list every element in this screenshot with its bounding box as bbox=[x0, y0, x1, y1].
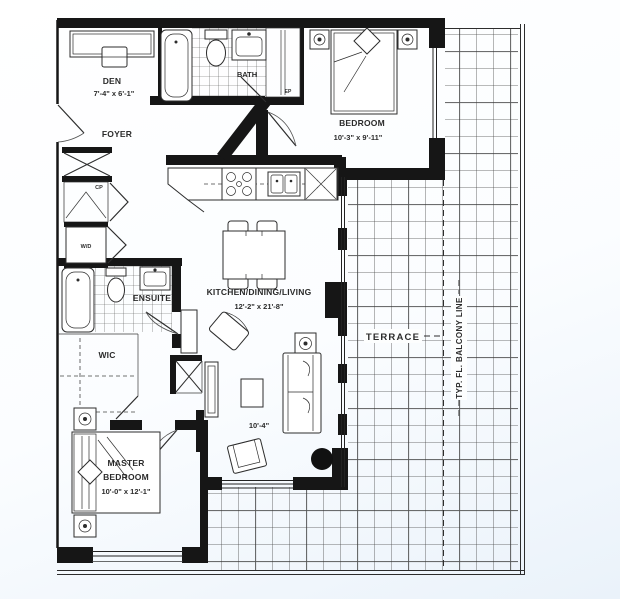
den-label: DEN bbox=[103, 76, 122, 86]
entry-door bbox=[58, 105, 84, 133]
wall-kitchen-north bbox=[166, 155, 342, 165]
bedroom-furniture bbox=[310, 28, 417, 114]
wall-top bbox=[57, 18, 445, 28]
master-label-2: BEDROOM bbox=[103, 472, 149, 482]
balcony-line-label: TYP. FL. BALCONY LINE bbox=[455, 297, 464, 399]
terrace-label: TERRACE bbox=[366, 332, 420, 343]
cp-bifold-door bbox=[110, 183, 128, 221]
dining bbox=[223, 221, 285, 289]
terrace-grid-bold bbox=[207, 487, 518, 570]
kitchen-sink-drain bbox=[276, 180, 279, 183]
ensuite-sink-faucet bbox=[153, 268, 156, 271]
bath-tub-drain bbox=[175, 41, 178, 44]
wall-living-east-seg bbox=[338, 318, 347, 336]
wic-door bbox=[116, 396, 138, 419]
living-furniture bbox=[205, 308, 333, 473]
den-dims: 7'-4" x 6'-1" bbox=[94, 89, 135, 98]
bedroom-dims: 10'-3" x 9'-11" bbox=[334, 133, 383, 142]
coffee-table bbox=[241, 379, 263, 407]
ensuite-toilet-tank bbox=[106, 268, 126, 276]
kitchen-sink bbox=[268, 172, 300, 196]
stove bbox=[222, 168, 256, 200]
entry-door-swing bbox=[58, 133, 84, 142]
wall-ep-south bbox=[262, 97, 304, 105]
lamp-icon-dot bbox=[83, 417, 87, 421]
lamp-icon-dot bbox=[406, 38, 410, 42]
ensuite-tub-drain bbox=[77, 279, 80, 282]
cp-closet-doors bbox=[66, 192, 106, 218]
wall-master-east bbox=[200, 430, 208, 563]
wall-living-east-corner bbox=[332, 448, 348, 490]
armchair bbox=[227, 438, 267, 473]
bath-toilet bbox=[207, 40, 226, 66]
lamp-icon-dot bbox=[83, 524, 87, 528]
den-furniture bbox=[70, 31, 154, 67]
structural-column bbox=[311, 448, 333, 470]
bath-label: BATH bbox=[237, 70, 257, 79]
living-dim: 10'-4" bbox=[249, 421, 270, 430]
kitchen-dims: 12'-2" x 21'-8" bbox=[234, 302, 283, 311]
wall-living-east-seg bbox=[338, 228, 347, 250]
ensuite-label: ENSUITE bbox=[133, 293, 171, 303]
wd-label: W/D bbox=[81, 244, 92, 250]
kitchen-label: KITCHEN/DINING/LIVING bbox=[207, 287, 312, 297]
lamp-icon-dot bbox=[304, 342, 308, 346]
bedroom-door bbox=[268, 112, 296, 146]
wall-bedroom-door-stub bbox=[256, 110, 268, 158]
x-closet-top-bar bbox=[62, 147, 112, 153]
wall-master-north-right bbox=[175, 420, 208, 430]
bath-toilet-tank bbox=[205, 30, 227, 39]
wic-area bbox=[58, 334, 138, 414]
wall-living-east-seg bbox=[338, 177, 347, 196]
living-x-closet bbox=[176, 361, 202, 393]
tv-console bbox=[205, 362, 218, 417]
wall-master-north-left bbox=[110, 420, 142, 430]
floor-plan: TERRACE TYP. FL. BALCONY LINE bbox=[0, 0, 620, 599]
wall-master-south-right bbox=[182, 547, 208, 563]
kitchen-counter-return bbox=[188, 200, 204, 212]
wall-bedroom-east-upper bbox=[429, 18, 445, 48]
wd-bottom-bar bbox=[64, 263, 108, 268]
wall-living-east-block bbox=[325, 282, 347, 318]
lamp-icon-dot bbox=[318, 38, 322, 42]
hall-wall-panel bbox=[181, 310, 197, 353]
wd-top-bar bbox=[64, 222, 108, 227]
wall-closet-left bbox=[170, 355, 176, 394]
kitchen-sink-drain bbox=[290, 180, 293, 183]
bath-sink-faucet bbox=[247, 32, 251, 36]
floor-plan-page: TERRACE TYP. FL. BALCONY LINE bbox=[0, 0, 620, 599]
sofa bbox=[283, 353, 321, 433]
bedroom-label: BEDROOM bbox=[339, 118, 385, 128]
terrace-grid-bold bbox=[445, 28, 518, 180]
armchair bbox=[208, 308, 252, 351]
wic-label: WIC bbox=[98, 350, 115, 360]
ep-closet bbox=[266, 28, 300, 97]
ep-closet-box bbox=[266, 28, 300, 97]
cp-label: CP bbox=[95, 185, 103, 191]
dining-table bbox=[223, 231, 285, 279]
wall-ensuite-east-upper bbox=[172, 266, 181, 312]
master-label-1: MASTER bbox=[107, 458, 144, 468]
ep-label: EP bbox=[285, 89, 292, 95]
wall-master-south-left bbox=[57, 547, 93, 563]
wall-bedroom-south bbox=[345, 168, 445, 180]
wall-living-east-seg bbox=[338, 364, 347, 383]
ensuite-toilet bbox=[108, 278, 125, 302]
x-closet-bottom-bar bbox=[62, 176, 112, 182]
foyer-label: FOYER bbox=[102, 129, 132, 139]
master-dims: 10'-0" x 12'-1" bbox=[101, 487, 150, 496]
wall-living-east-seg bbox=[338, 414, 347, 435]
wall-bedroom-west bbox=[300, 28, 304, 98]
kitchen bbox=[168, 168, 338, 212]
wall-ensuite-east-stub bbox=[172, 334, 181, 348]
wall-living-south-left bbox=[204, 477, 222, 490]
